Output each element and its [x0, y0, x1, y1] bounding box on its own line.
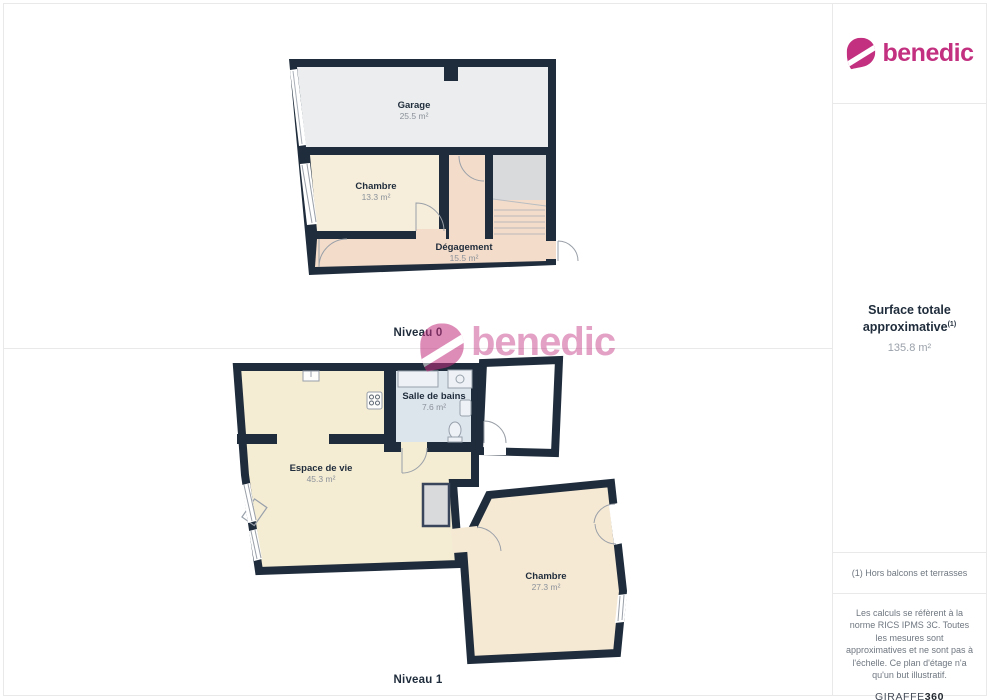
- room-area-degagement: 15.5 m²: [450, 253, 479, 263]
- floorplan-niveau0: Garage 25.5 m² Chambre 13.3 m² Dégagemen…: [281, 53, 581, 288]
- provider-suffix: 360: [925, 691, 944, 700]
- footnote-text: (1) Hors balcons et terrasses: [852, 568, 968, 578]
- room-area-chambre0: 13.3 m²: [362, 192, 391, 202]
- floorplan-panel-niveau1: Salle de bains 7.6 m² Espace de vie 45.3…: [3, 348, 833, 696]
- benedic-logo-icon: [846, 37, 876, 70]
- bath-sink-icon: [448, 370, 472, 388]
- room-label-chambre0: Chambre: [355, 181, 396, 192]
- disclaimer-text: Les calculs se réfèrent à la norme RICS …: [845, 607, 974, 681]
- door-opening: [484, 443, 506, 455]
- stairs: [493, 200, 546, 241]
- room-label-salle-de-bains: Salle de bains: [402, 391, 465, 402]
- floorplan-panel-niveau0: Garage 25.5 m² Chambre 13.3 m² Dégagemen…: [3, 3, 833, 349]
- stair-landing: [493, 155, 546, 200]
- interior-wall: [329, 434, 388, 444]
- door-arc: [558, 241, 578, 261]
- interior-wall: [237, 434, 277, 444]
- room-area-salle-de-bains: 7.6 m²: [422, 402, 446, 412]
- surface-footnote-ref: (1): [948, 320, 957, 327]
- wardrobe: [423, 484, 449, 526]
- provider-name: GIRAFFE: [875, 691, 925, 700]
- niveau1-label: Niveau 1: [4, 674, 832, 686]
- door-opening: [451, 526, 479, 553]
- door-opening: [416, 229, 446, 241]
- room-label-degagement: Dégagement: [435, 242, 493, 253]
- corridor-vertical-floor: [449, 155, 485, 243]
- niveau0-label: Niveau 0: [4, 327, 832, 339]
- toilet-icon: [448, 422, 462, 442]
- wall-stub: [444, 61, 458, 81]
- door-opening: [546, 241, 556, 259]
- brand-panel: benedic: [832, 3, 987, 104]
- door-opening: [401, 442, 427, 453]
- shower-icon: [398, 371, 438, 387]
- disclaimer-panel: Les calculs se réfèrent à la norme RICS …: [832, 593, 987, 696]
- room-area-chambre1: 27.3 m²: [532, 582, 561, 592]
- annex-floor: [479, 360, 559, 453]
- footnote-panel: (1) Hors balcons et terrasses: [832, 552, 987, 594]
- room-area-garage: 25.5 m²: [400, 111, 429, 121]
- floorplan-niveau1: Salle de bains 7.6 m² Espace de vie 45.3…: [221, 353, 641, 671]
- surface-value: 135.8 m²: [888, 342, 931, 354]
- room-area-espace-de-vie: 45.3 m²: [307, 474, 336, 484]
- surface-title: Surface totale approximative(1): [841, 302, 978, 335]
- floorplan-page: { "brand": { "name": "benedic", "color":…: [0, 0, 990, 700]
- stove-icon: [367, 392, 382, 409]
- room-label-chambre1: Chambre: [525, 571, 566, 582]
- room-label-espace-de-vie: Espace de vie: [290, 463, 353, 474]
- brand-name: benedic: [883, 39, 974, 68]
- washer-icon: [460, 400, 471, 416]
- brand-logo: benedic: [846, 37, 974, 70]
- surface-panel: Surface totale approximative(1) 135.8 m²: [832, 103, 987, 553]
- provider-logo: GIRAFFE360: [875, 691, 944, 700]
- room-label-garage: Garage: [398, 100, 431, 111]
